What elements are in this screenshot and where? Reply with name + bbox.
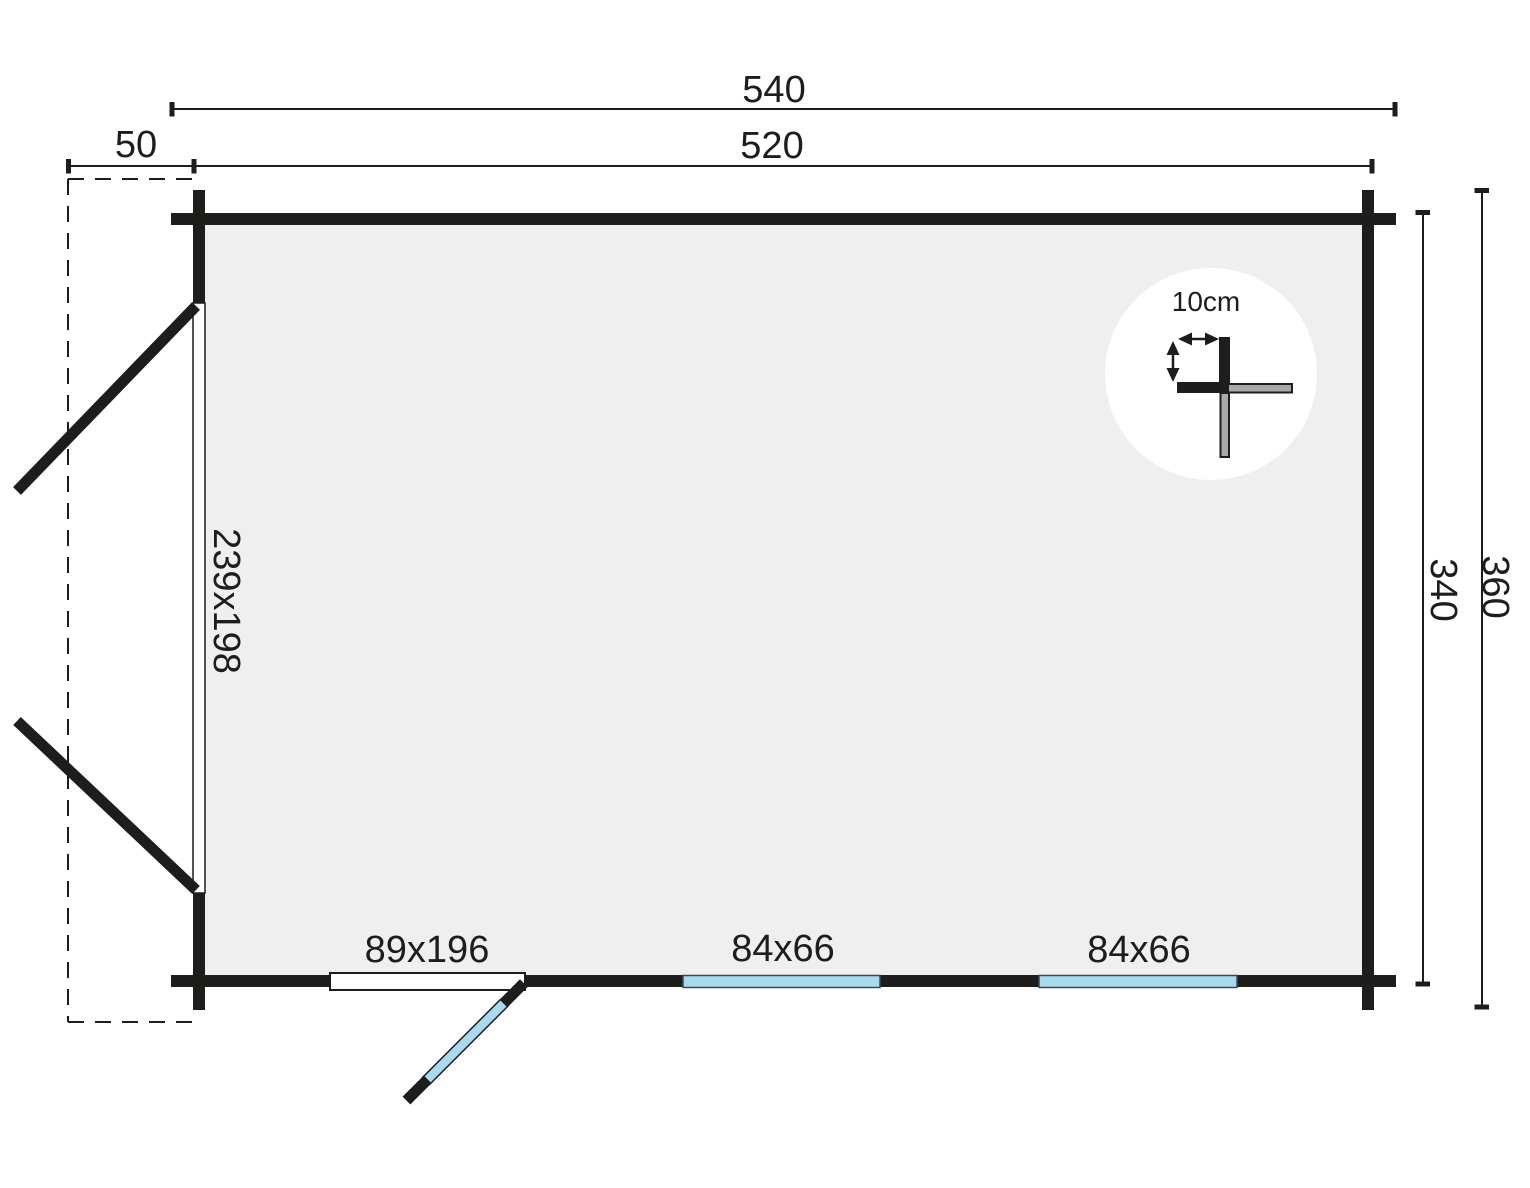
label-front-door-size: 89x196 — [327, 930, 527, 970]
label-wall-to-wall-width: 520 — [712, 126, 832, 166]
front-door-leaf — [403, 979, 528, 1104]
tick-50-left — [66, 159, 71, 174]
tick-520-right — [1370, 159, 1375, 174]
label-wall-to-wall-depth: 340 — [1423, 530, 1463, 650]
tick-540-left — [170, 102, 175, 117]
tick-360-top — [1475, 188, 1490, 193]
double-door-leaf-upper — [17, 306, 196, 491]
tick-540-right — [1393, 102, 1398, 117]
tick-340-top — [1416, 210, 1431, 215]
label-wall-thickness: 10cm — [1126, 287, 1286, 317]
front-door-leaf-panel — [423, 999, 508, 1084]
floor-plan-canvas: 540 520 50 239x198 89x196 84x66 84x66 34… — [0, 0, 1530, 1188]
detail-black-log-horizontal — [1177, 382, 1230, 393]
left-wall-upper — [193, 190, 205, 303]
right-wall — [1362, 190, 1374, 1010]
label-overall-depth: 360 — [1475, 527, 1515, 647]
tick-520-left — [192, 159, 197, 174]
double-door-leaf-lower — [17, 721, 196, 890]
label-side-overhang: 50 — [96, 125, 176, 165]
front-door-leaf-end-tip — [403, 1075, 432, 1104]
left-wall-lower — [193, 893, 205, 1010]
double-door-frame — [193, 303, 205, 893]
tick-360-bottom — [1475, 1005, 1490, 1010]
detail-gray-log-horizontal — [1228, 384, 1292, 393]
dashed-overhang-outline — [68, 179, 198, 1022]
window-1 — [683, 976, 880, 988]
label-overall-width: 540 — [714, 70, 834, 110]
label-window-1-size: 84x66 — [683, 929, 883, 969]
top-wall — [171, 213, 1396, 225]
label-double-door-size: 239x198 — [206, 501, 246, 701]
tick-340-bottom — [1416, 982, 1431, 987]
front-door-opening — [330, 973, 525, 990]
detail-gray-log-vertical — [1221, 393, 1230, 457]
window-2 — [1039, 976, 1237, 988]
label-window-2-size: 84x66 — [1039, 930, 1239, 970]
